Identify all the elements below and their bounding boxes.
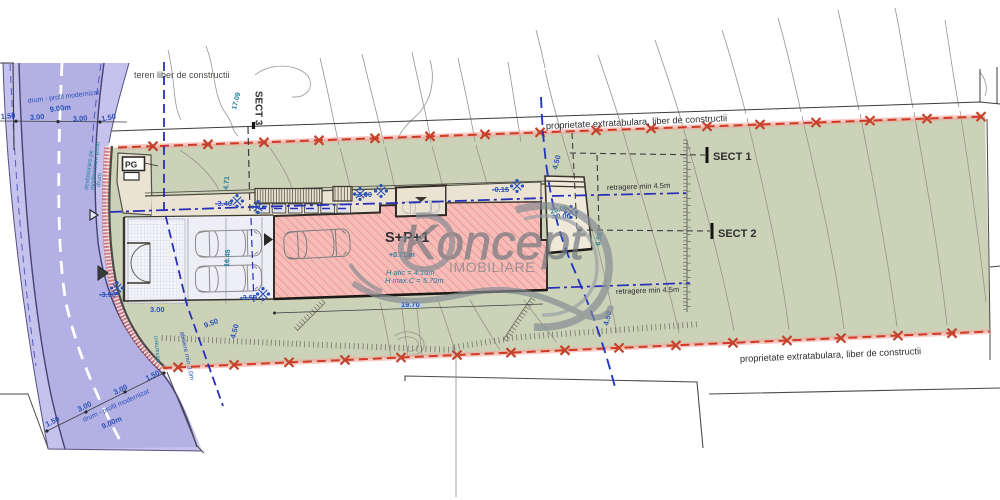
svg-text:SECT 1: SECT 1 (713, 151, 752, 163)
svg-text:-3.40: -3.40 (215, 199, 232, 208)
svg-text:-0.15: -0.15 (492, 185, 509, 194)
svg-text:SECT 2: SECT 2 (718, 228, 757, 240)
svg-text:3.00: 3.00 (30, 112, 45, 122)
svg-text:3.00: 3.00 (150, 305, 165, 314)
svg-text:3.00: 3.00 (73, 113, 88, 123)
svg-text:16.45: 16.45 (224, 249, 232, 267)
svg-text:4.71: 4.71 (223, 176, 231, 190)
svg-text:PG: PG (125, 160, 138, 170)
svg-text:teren liber de constructii: teren liber de constructii (134, 70, 230, 80)
svg-text:-3.50: -3.50 (240, 293, 257, 302)
svg-text:1.50: 1.50 (1, 111, 16, 121)
svg-text:IMOBILIARE: IMOBILIARE (449, 259, 535, 275)
svg-text:SECT 3: SECT 3 (253, 91, 264, 126)
svg-text:H max.C = 5.70m: H max.C = 5.70m (385, 276, 444, 285)
